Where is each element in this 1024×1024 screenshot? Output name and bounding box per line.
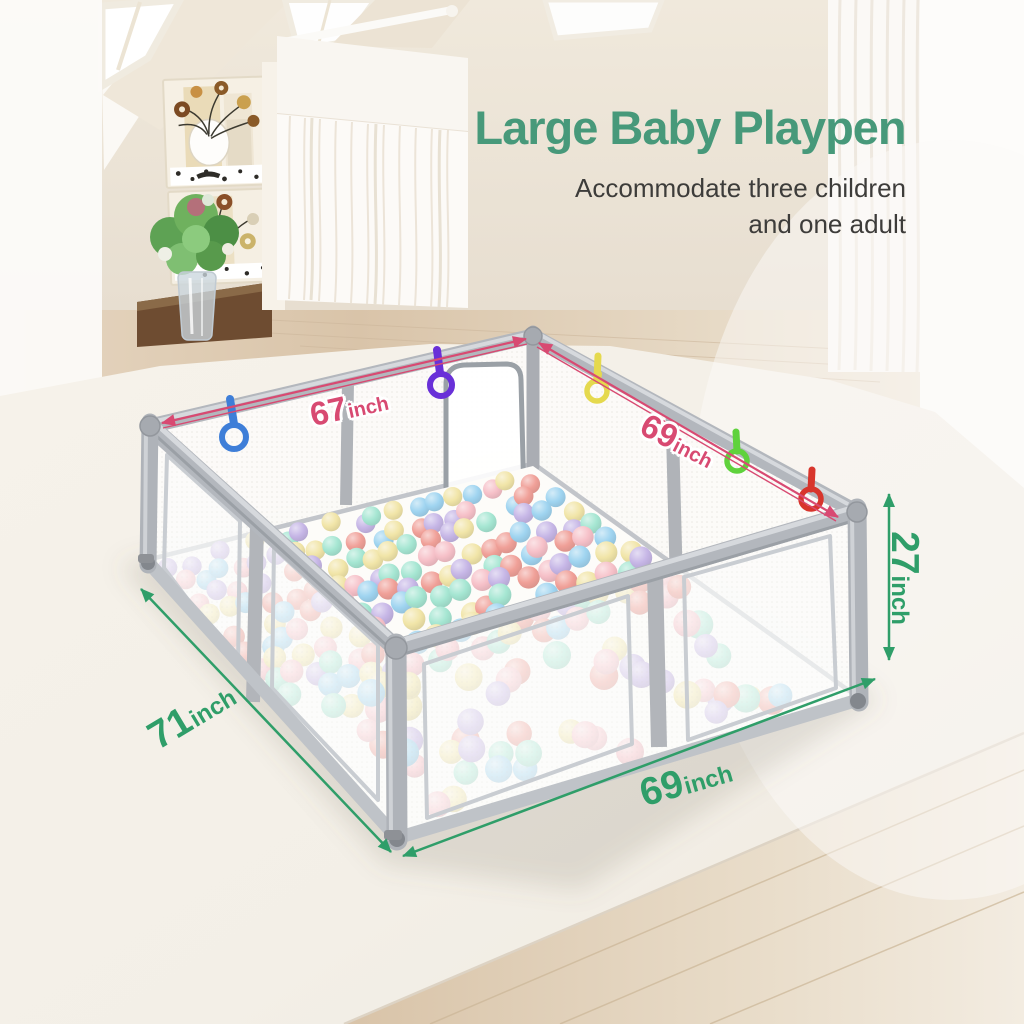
dimension-label-27inch: 27inch <box>882 531 926 625</box>
page-subtitle: Accommodate three children and one adult <box>466 170 906 242</box>
subtitle-line: Accommodate three children <box>466 170 906 206</box>
mid-post <box>655 572 659 747</box>
bright-wall-corner <box>0 0 102 398</box>
product-image: Large Baby Playpen Accommodate three chi… <box>0 0 1024 1024</box>
subtitle-line: and one adult <box>466 206 906 242</box>
window-curtain-middle <box>277 36 468 308</box>
wall-art-top <box>163 76 271 188</box>
glass-vase <box>178 272 216 340</box>
skylight-window <box>545 0 662 38</box>
page-title: Large Baby Playpen <box>466 100 914 155</box>
